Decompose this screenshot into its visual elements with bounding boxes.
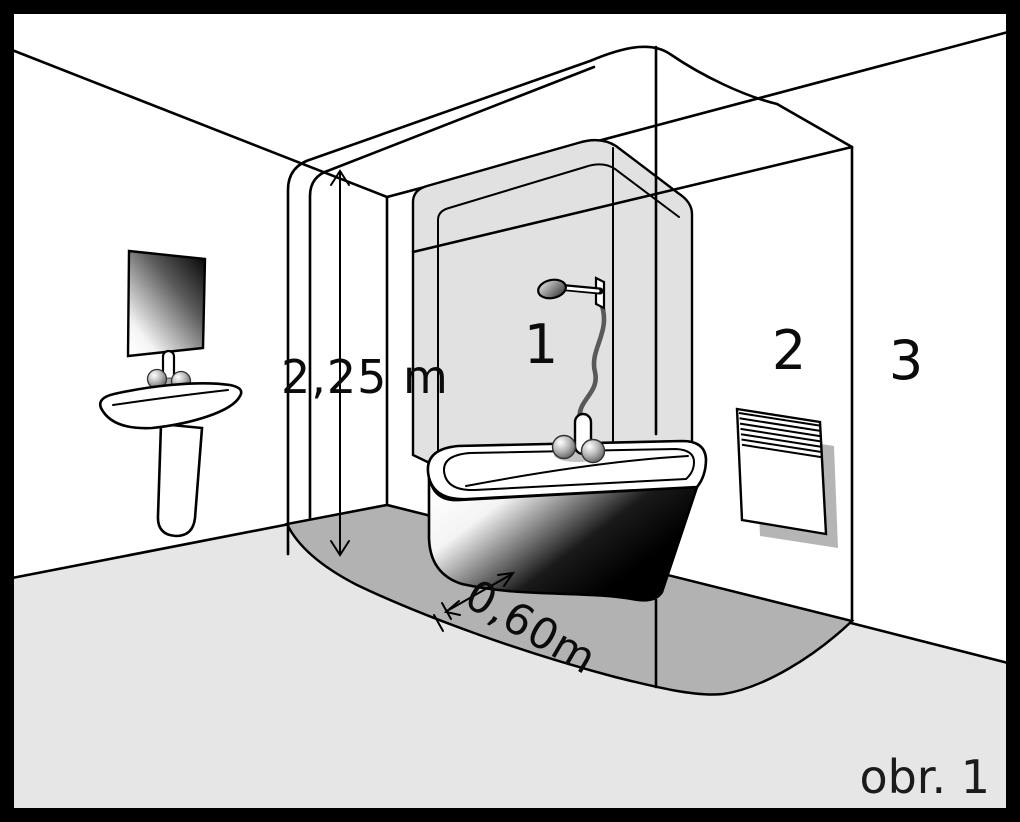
bathtub [428, 441, 706, 600]
figure-bathroom-zones: 2,25 m 0,60m 1 2 3 [0, 0, 1020, 822]
ceiling-left-edge [12, 50, 387, 197]
pedestal [158, 424, 202, 536]
zone-3-label: 3 [889, 329, 923, 392]
figure-caption: obr. 1 [859, 750, 990, 804]
zone-2-label: 2 [772, 319, 806, 382]
wall-heater [737, 409, 838, 548]
washbasin-with-pedestal [100, 351, 241, 536]
shower-enclosure [413, 140, 692, 477]
tap-knob-left [553, 436, 576, 459]
tap-knob-right [582, 440, 605, 463]
mirror [128, 251, 205, 356]
zone-1-label: 1 [524, 313, 558, 376]
height-dimension-label: 2,25 m [281, 350, 449, 404]
diagram-canvas: 2,25 m 0,60m 1 2 3 [0, 0, 1020, 822]
